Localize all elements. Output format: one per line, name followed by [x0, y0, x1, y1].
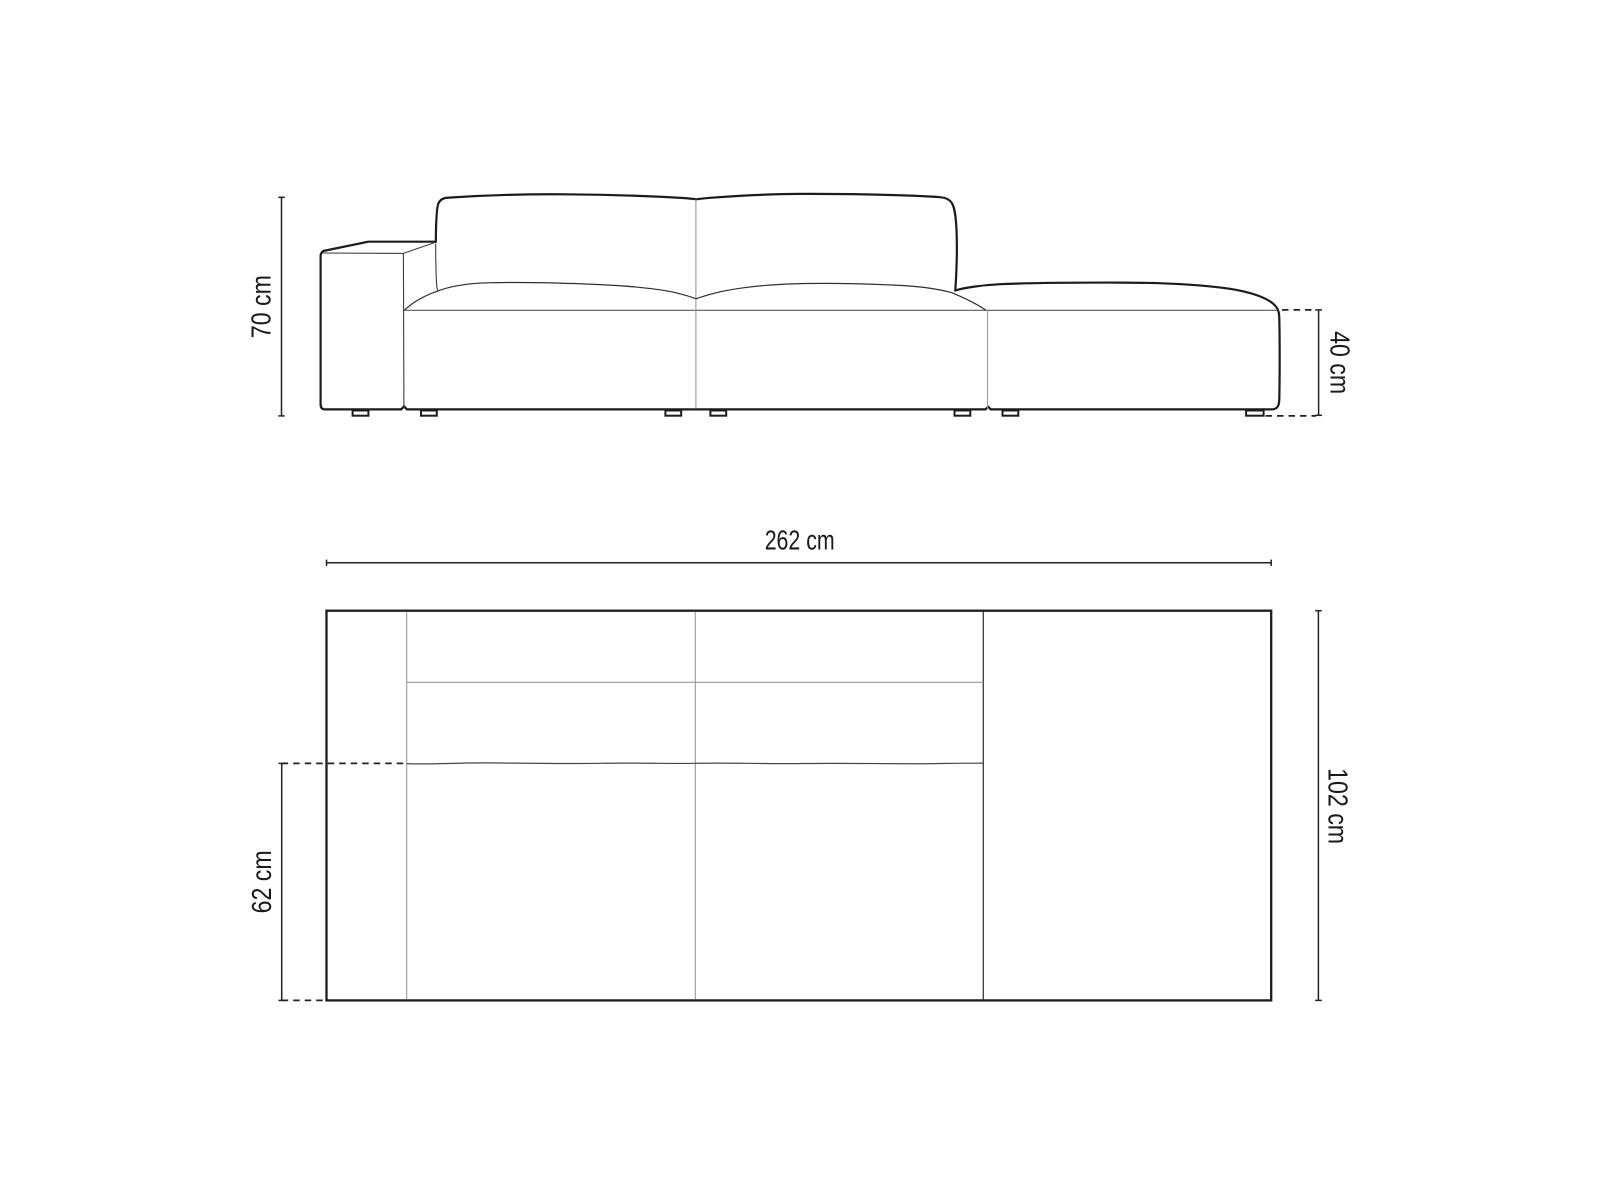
svg-text:40 cm: 40 cm — [1325, 331, 1356, 394]
svg-text:102 cm: 102 cm — [1323, 768, 1354, 844]
svg-text:70 cm: 70 cm — [246, 275, 277, 338]
svg-text:262 cm: 262 cm — [765, 524, 835, 555]
svg-text:62 cm: 62 cm — [246, 850, 277, 913]
